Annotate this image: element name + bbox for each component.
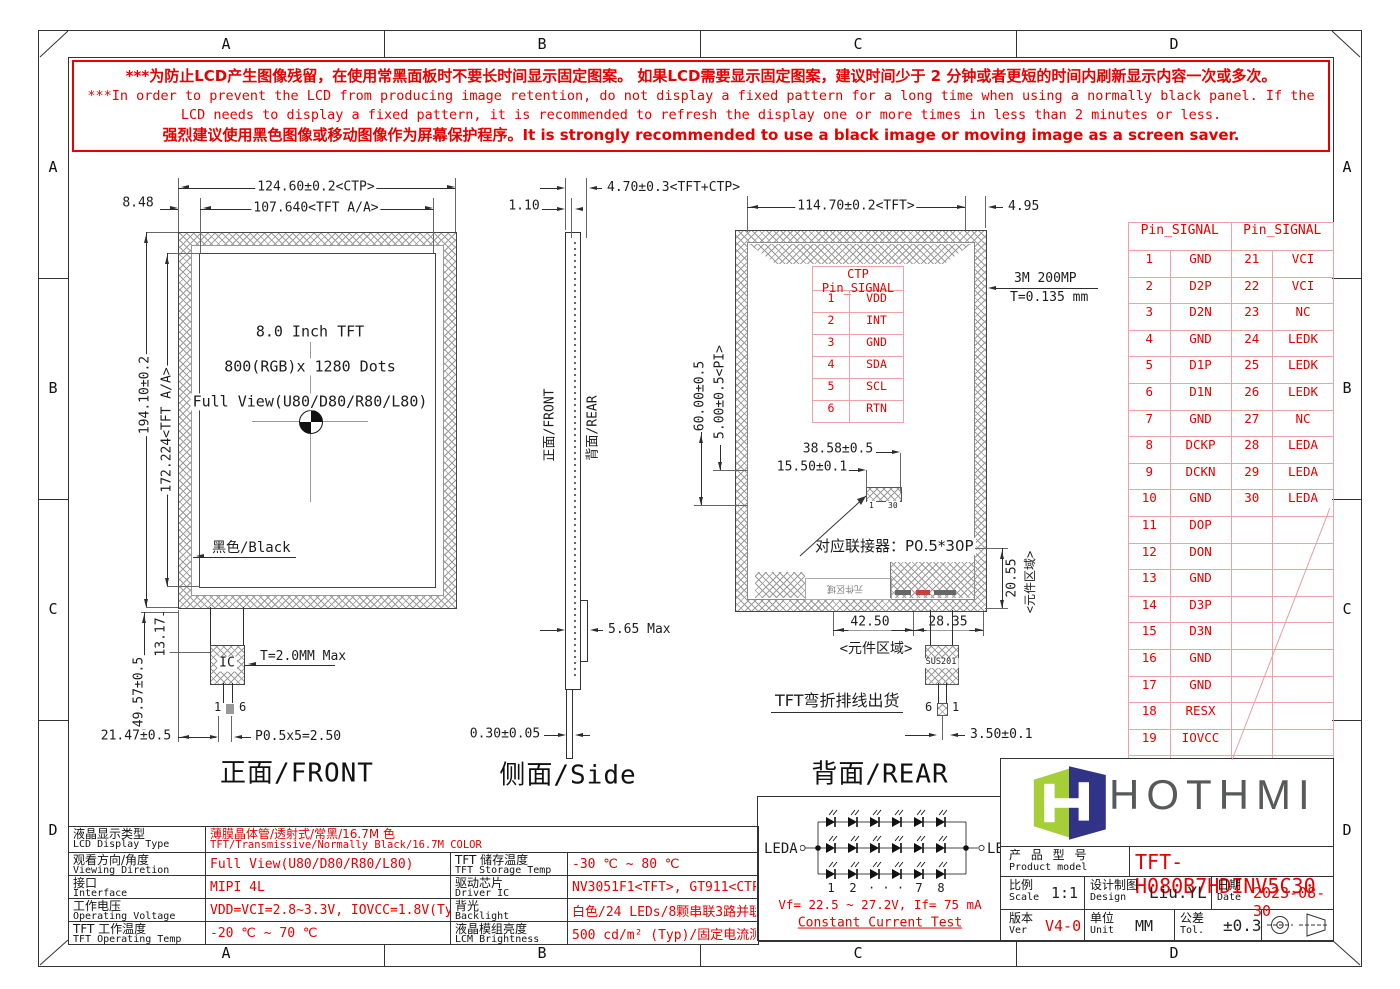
dim-height: 194.10±0.2 bbox=[139, 354, 154, 436]
rear-view-title: 背面/REAR bbox=[811, 754, 948, 791]
pin-table-row: 17GND bbox=[1129, 677, 1333, 704]
ver-label-cn: 版本 bbox=[1009, 912, 1033, 925]
pin-table-row: 4GND24LEDK bbox=[1129, 331, 1333, 358]
design-label-cn: 设计制图 bbox=[1090, 879, 1138, 892]
led-circuit-diagram bbox=[798, 802, 988, 882]
rear-connector bbox=[866, 487, 902, 502]
front-panel-resolution: 800(RGB)x 1280 Dots bbox=[222, 358, 398, 375]
dim-comp-height: 20.55 bbox=[1006, 556, 1021, 599]
pin-table-row: 5D1P25LEDK bbox=[1129, 357, 1333, 384]
pin-table-row: 18RESX bbox=[1129, 703, 1333, 730]
dim-right-margin: 4.95 bbox=[1006, 200, 1041, 215]
front-fpc-pin1: 1 bbox=[212, 701, 223, 715]
pin-table-row: 9DCKN29LEDA bbox=[1129, 464, 1333, 491]
warning-line-mixed: 强烈建议使用黑色图像或移动图像作为屏幕保护程序。It is strongly r… bbox=[74, 125, 1328, 146]
rear-component-area-inner: 元件区域 bbox=[825, 583, 865, 593]
front-panel-view: Full View(U80/D80/R80/L80) bbox=[191, 393, 430, 410]
spec-table-row: 接口InterfaceMIPI 4L驱动芯片Driver ICNV3051F1<… bbox=[69, 876, 758, 899]
dim-bottom-lip: 13.17 bbox=[155, 615, 170, 658]
zone-right-c: C bbox=[1342, 600, 1351, 618]
spec-table-row: 工作电压Operating VoltageVDD=VCI=2.8~3.3V, I… bbox=[69, 899, 758, 922]
dim-comp-left: 42.50 bbox=[848, 616, 891, 631]
dim-glass-thickness: 1.10 bbox=[506, 200, 541, 215]
front-fpc-pin6: 6 bbox=[237, 701, 248, 715]
date-label-cn: 日期 bbox=[1217, 879, 1241, 892]
ctp-table-row: 2INT bbox=[813, 313, 903, 335]
warning-line-cn: ***为防止LCD产生图像残留，在使用常黑面板时不要长时间显示固定图案。 如果L… bbox=[74, 66, 1328, 87]
zone-right-d: D bbox=[1342, 821, 1351, 839]
rear-component-area-bottom: <元件区域> bbox=[838, 641, 915, 657]
tol-value: ±0.3 bbox=[1223, 916, 1262, 935]
smd-component bbox=[895, 590, 911, 595]
center-mark-icon bbox=[299, 410, 323, 434]
zone-right-a: A bbox=[1342, 158, 1351, 176]
tol-label-en: Tol. bbox=[1180, 925, 1204, 936]
dim-aa-width: 107.640<TFT A/A> bbox=[251, 202, 380, 217]
dim-ctp-width: 124.60±0.2<CTP> bbox=[255, 181, 376, 196]
pin-table-row: 3D2N23NC bbox=[1129, 304, 1333, 331]
rear-tape-label: 3M 200MP bbox=[1012, 272, 1079, 287]
ver-value: V4-0 bbox=[1045, 917, 1081, 935]
zone-bottom-d: D bbox=[1169, 944, 1178, 962]
drawing-sheet: A B C D A B C D A B C D A B C D ***为防止LC… bbox=[0, 0, 1400, 989]
scale-label-cn: 比例 bbox=[1009, 879, 1039, 892]
ctp-table-row: 6RTN bbox=[813, 401, 903, 422]
front-black-label: 黑色/Black bbox=[210, 540, 293, 556]
dim-fpc-width: 3.50±0.1 bbox=[968, 728, 1035, 743]
side-fpc-tail bbox=[566, 689, 573, 759]
pin-table-row: 15D3N bbox=[1129, 623, 1333, 650]
spec-table: 液晶显示类型LCD Display Type薄膜晶体管/透射式/常黑/16.7M… bbox=[68, 826, 759, 945]
pin-table-header-right: Pin_SIGNAL bbox=[1232, 223, 1334, 250]
rear-component-area-side: <元件区域> bbox=[1024, 549, 1038, 615]
front-view-title: 正面/FRONT bbox=[220, 753, 374, 790]
tol-label-cn: 公差 bbox=[1180, 912, 1204, 925]
retention-warning: ***为防止LCD产生图像残留，在使用常黑面板时不要长时间显示固定图案。 如果L… bbox=[72, 60, 1330, 152]
zone-top-c: C bbox=[853, 35, 862, 53]
dim-bottom-height: 49.57±0.5 bbox=[133, 655, 148, 729]
dim-max-thickness: 5.65 Max bbox=[606, 623, 673, 638]
rear-fpc-pin6: 6 bbox=[923, 701, 934, 715]
spec-table-row: 液晶显示类型LCD Display Type薄膜晶体管/透射式/常黑/16.7M… bbox=[69, 827, 758, 853]
title-block: HOTHMI 产 品 型 号 Product model TFT-H080B7H… bbox=[1000, 758, 1334, 941]
warning-line-en1: ***In order to prevent the LCD from prod… bbox=[74, 87, 1328, 106]
dim-aa-height: 172.224<TFT A/A> bbox=[161, 365, 176, 494]
pin-table-row: 8DCKP28LEDA bbox=[1129, 437, 1333, 464]
side-view-title: 侧面/Side bbox=[499, 755, 636, 792]
led-index-1: 1 bbox=[825, 882, 836, 896]
ctp-pin-table: CTP Pin_SIGNAL 1VDD2INT3GND4SDA5SCL6RTN bbox=[812, 266, 904, 423]
pin-table-row: 6D1N26LEDK bbox=[1129, 384, 1333, 411]
rear-fpc-note: TFT弯折排线出货 bbox=[773, 692, 901, 710]
interface-pin-table: Pin_SIGNAL Pin_SIGNAL 1GND21VCI2D2P22VCI… bbox=[1128, 222, 1334, 783]
ctp-table-row: 4SDA bbox=[813, 357, 903, 379]
led-test-note: Constant Current Test bbox=[796, 917, 964, 932]
scale-value: 1:1 bbox=[1051, 884, 1078, 902]
rear-connector-pin1: 1 bbox=[867, 501, 876, 510]
scale-label-en: Scale bbox=[1009, 892, 1039, 903]
zone-left-d: D bbox=[48, 821, 57, 839]
smd-component bbox=[916, 590, 930, 595]
ctp-table-row: 1VDD bbox=[813, 291, 903, 313]
rear-connector-pin30: 30 bbox=[886, 501, 900, 510]
zone-bottom-c: C bbox=[853, 944, 862, 962]
rear-component-left bbox=[755, 572, 805, 598]
rear-connector-note: 对应联接器：P0.5*30P bbox=[813, 538, 976, 555]
dim-conn-offset-y: 60.00±0.5 bbox=[694, 359, 709, 433]
spec-table-body: 液晶显示类型LCD Display Type薄膜晶体管/透射式/常黑/16.7M… bbox=[69, 827, 758, 944]
pin-table-row: 1GND21VCI bbox=[1129, 251, 1333, 278]
design-label-en: Design bbox=[1090, 892, 1138, 903]
designer-name: Liu.YL bbox=[1149, 883, 1207, 902]
dim-left-margin: 8.48 bbox=[120, 197, 155, 212]
zone-top-a: A bbox=[221, 35, 230, 53]
rear-fpc-pin1: 1 bbox=[950, 701, 961, 715]
projection-symbol-icon bbox=[1267, 912, 1329, 938]
pin-table-row: 12DON bbox=[1129, 544, 1333, 571]
unit-value: MM bbox=[1135, 917, 1153, 935]
led-index-8: 8 bbox=[935, 882, 946, 896]
dim-conn-x: 38.58±0.5 bbox=[801, 443, 875, 458]
spec-table-row: 观看方向/角度Viewing DiretionFull View(U80/D80… bbox=[69, 853, 758, 876]
pin-table-row: 10GND30LEDA bbox=[1129, 490, 1333, 517]
dim-tft-width: 114.70±0.2<TFT> bbox=[795, 200, 916, 215]
dim-fpc-thickness: 0.30±0.05 bbox=[468, 728, 542, 743]
side-rear-label: 背面/REAR bbox=[587, 393, 602, 462]
zone-right-b: B bbox=[1342, 379, 1351, 397]
hothmi-logo-icon bbox=[1029, 763, 1109, 843]
unit-label-en: Unit bbox=[1090, 925, 1114, 936]
pin-table-row: 14D3P bbox=[1129, 597, 1333, 624]
pin-table-row: 2D2P22VCI bbox=[1129, 278, 1333, 305]
dim-total-thickness: 4.70±0.3<TFT+CTP> bbox=[605, 181, 742, 196]
side-front-label: 正面/FRONT bbox=[544, 387, 559, 464]
zone-top-d: D bbox=[1169, 35, 1178, 53]
dim-comp-right: 28.35 bbox=[926, 616, 969, 631]
rear-top-gasket bbox=[749, 244, 971, 264]
pin-table-row: 13GND bbox=[1129, 570, 1333, 597]
zone-bottom-a: A bbox=[221, 944, 230, 962]
zone-top-b: B bbox=[537, 35, 546, 53]
dim-conn-x2: 15.50±0.1 bbox=[775, 461, 849, 476]
product-label-cn: 产 品 型 号 bbox=[1009, 849, 1089, 862]
pin-table-row: 11DOP bbox=[1129, 517, 1333, 544]
rear-sus-label: SUS201 bbox=[924, 658, 959, 668]
pin-table-row: 19IOVCC bbox=[1129, 730, 1333, 757]
ctp-table-row: 5SCL bbox=[813, 379, 903, 401]
pin-table-header-left: Pin_SIGNAL bbox=[1129, 223, 1232, 250]
led-anode-label: LEDA bbox=[762, 841, 800, 857]
unit-label-cn: 单位 bbox=[1090, 912, 1114, 925]
zone-left-a: A bbox=[48, 158, 57, 176]
front-fpc-end bbox=[226, 704, 234, 714]
pin-table-body: 1GND21VCI2D2P22VCI3D2N23NC4GND24LEDK5D1P… bbox=[1129, 251, 1333, 782]
led-index-dots: · · · bbox=[866, 882, 906, 896]
led-index-7: 7 bbox=[913, 882, 924, 896]
ctp-table-row: 3GND bbox=[813, 335, 903, 357]
zone-left-b: B bbox=[48, 379, 57, 397]
smd-component bbox=[934, 590, 956, 595]
led-vf-spec: Vf= 22.5 ~ 27.2V, If= 75 mA bbox=[776, 898, 983, 912]
warning-line-en2: LCD needs to display a fixed pattern, it… bbox=[74, 106, 1328, 125]
ctp-pin-table-header: CTP Pin_SIGNAL bbox=[813, 267, 903, 291]
dim-pitch: P0.5x5=2.50 bbox=[253, 730, 343, 745]
front-panel-size: 8.0 Inch TFT bbox=[254, 323, 366, 340]
product-label-en: Product model bbox=[1009, 862, 1089, 873]
date-label-en: Date bbox=[1217, 892, 1241, 903]
dim-pi: 5.00±0.5<PI> bbox=[714, 343, 729, 441]
zone-bottom-b: B bbox=[537, 944, 546, 962]
ver-label-en: Ver bbox=[1009, 925, 1033, 936]
side-backlight-stack bbox=[572, 240, 579, 680]
brand-name: HOTHMI bbox=[1109, 771, 1317, 819]
rear-tape-thickness: T=0.135 mm bbox=[1008, 291, 1090, 306]
pin-table-row: 7GND27NC bbox=[1129, 411, 1333, 438]
dim-fpc-offset: 21.47±0.5 bbox=[99, 730, 173, 745]
ctp-table-body: 1VDD2INT3GND4SDA5SCL6RTN bbox=[813, 291, 903, 422]
led-index-2: 2 bbox=[847, 882, 858, 896]
zone-left-c: C bbox=[48, 600, 57, 618]
front-ic-thickness: T=2.0MM Max bbox=[258, 650, 348, 665]
spec-table-row: TFT 工作温度TFT Operating Temp-20 ℃ ~ 70 ℃液晶… bbox=[69, 922, 758, 944]
rear-fpc-end bbox=[937, 703, 948, 716]
front-ic-label: IC bbox=[217, 657, 237, 672]
pin-table-row: 16GND bbox=[1129, 650, 1333, 677]
